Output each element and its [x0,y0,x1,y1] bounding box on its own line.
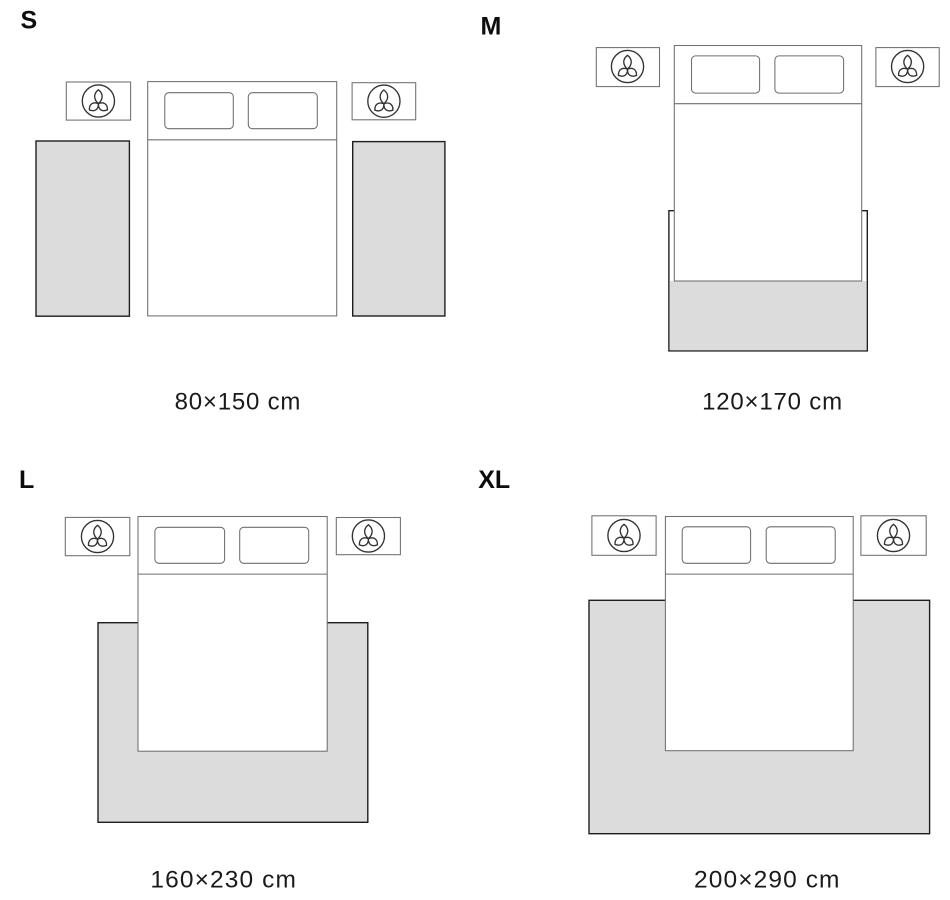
svg-text:L: L [19,466,34,494]
svg-text:M: M [481,13,502,41]
svg-text:120×170 cm: 120×170 cm [702,388,843,415]
svg-text:160×230 cm: 160×230 cm [150,867,297,894]
svg-text:80×150 cm: 80×150 cm [175,388,302,415]
svg-text:200×290 cm: 200×290 cm [694,867,841,894]
svg-text:S: S [21,7,38,35]
svg-text:XL: XL [478,466,510,494]
